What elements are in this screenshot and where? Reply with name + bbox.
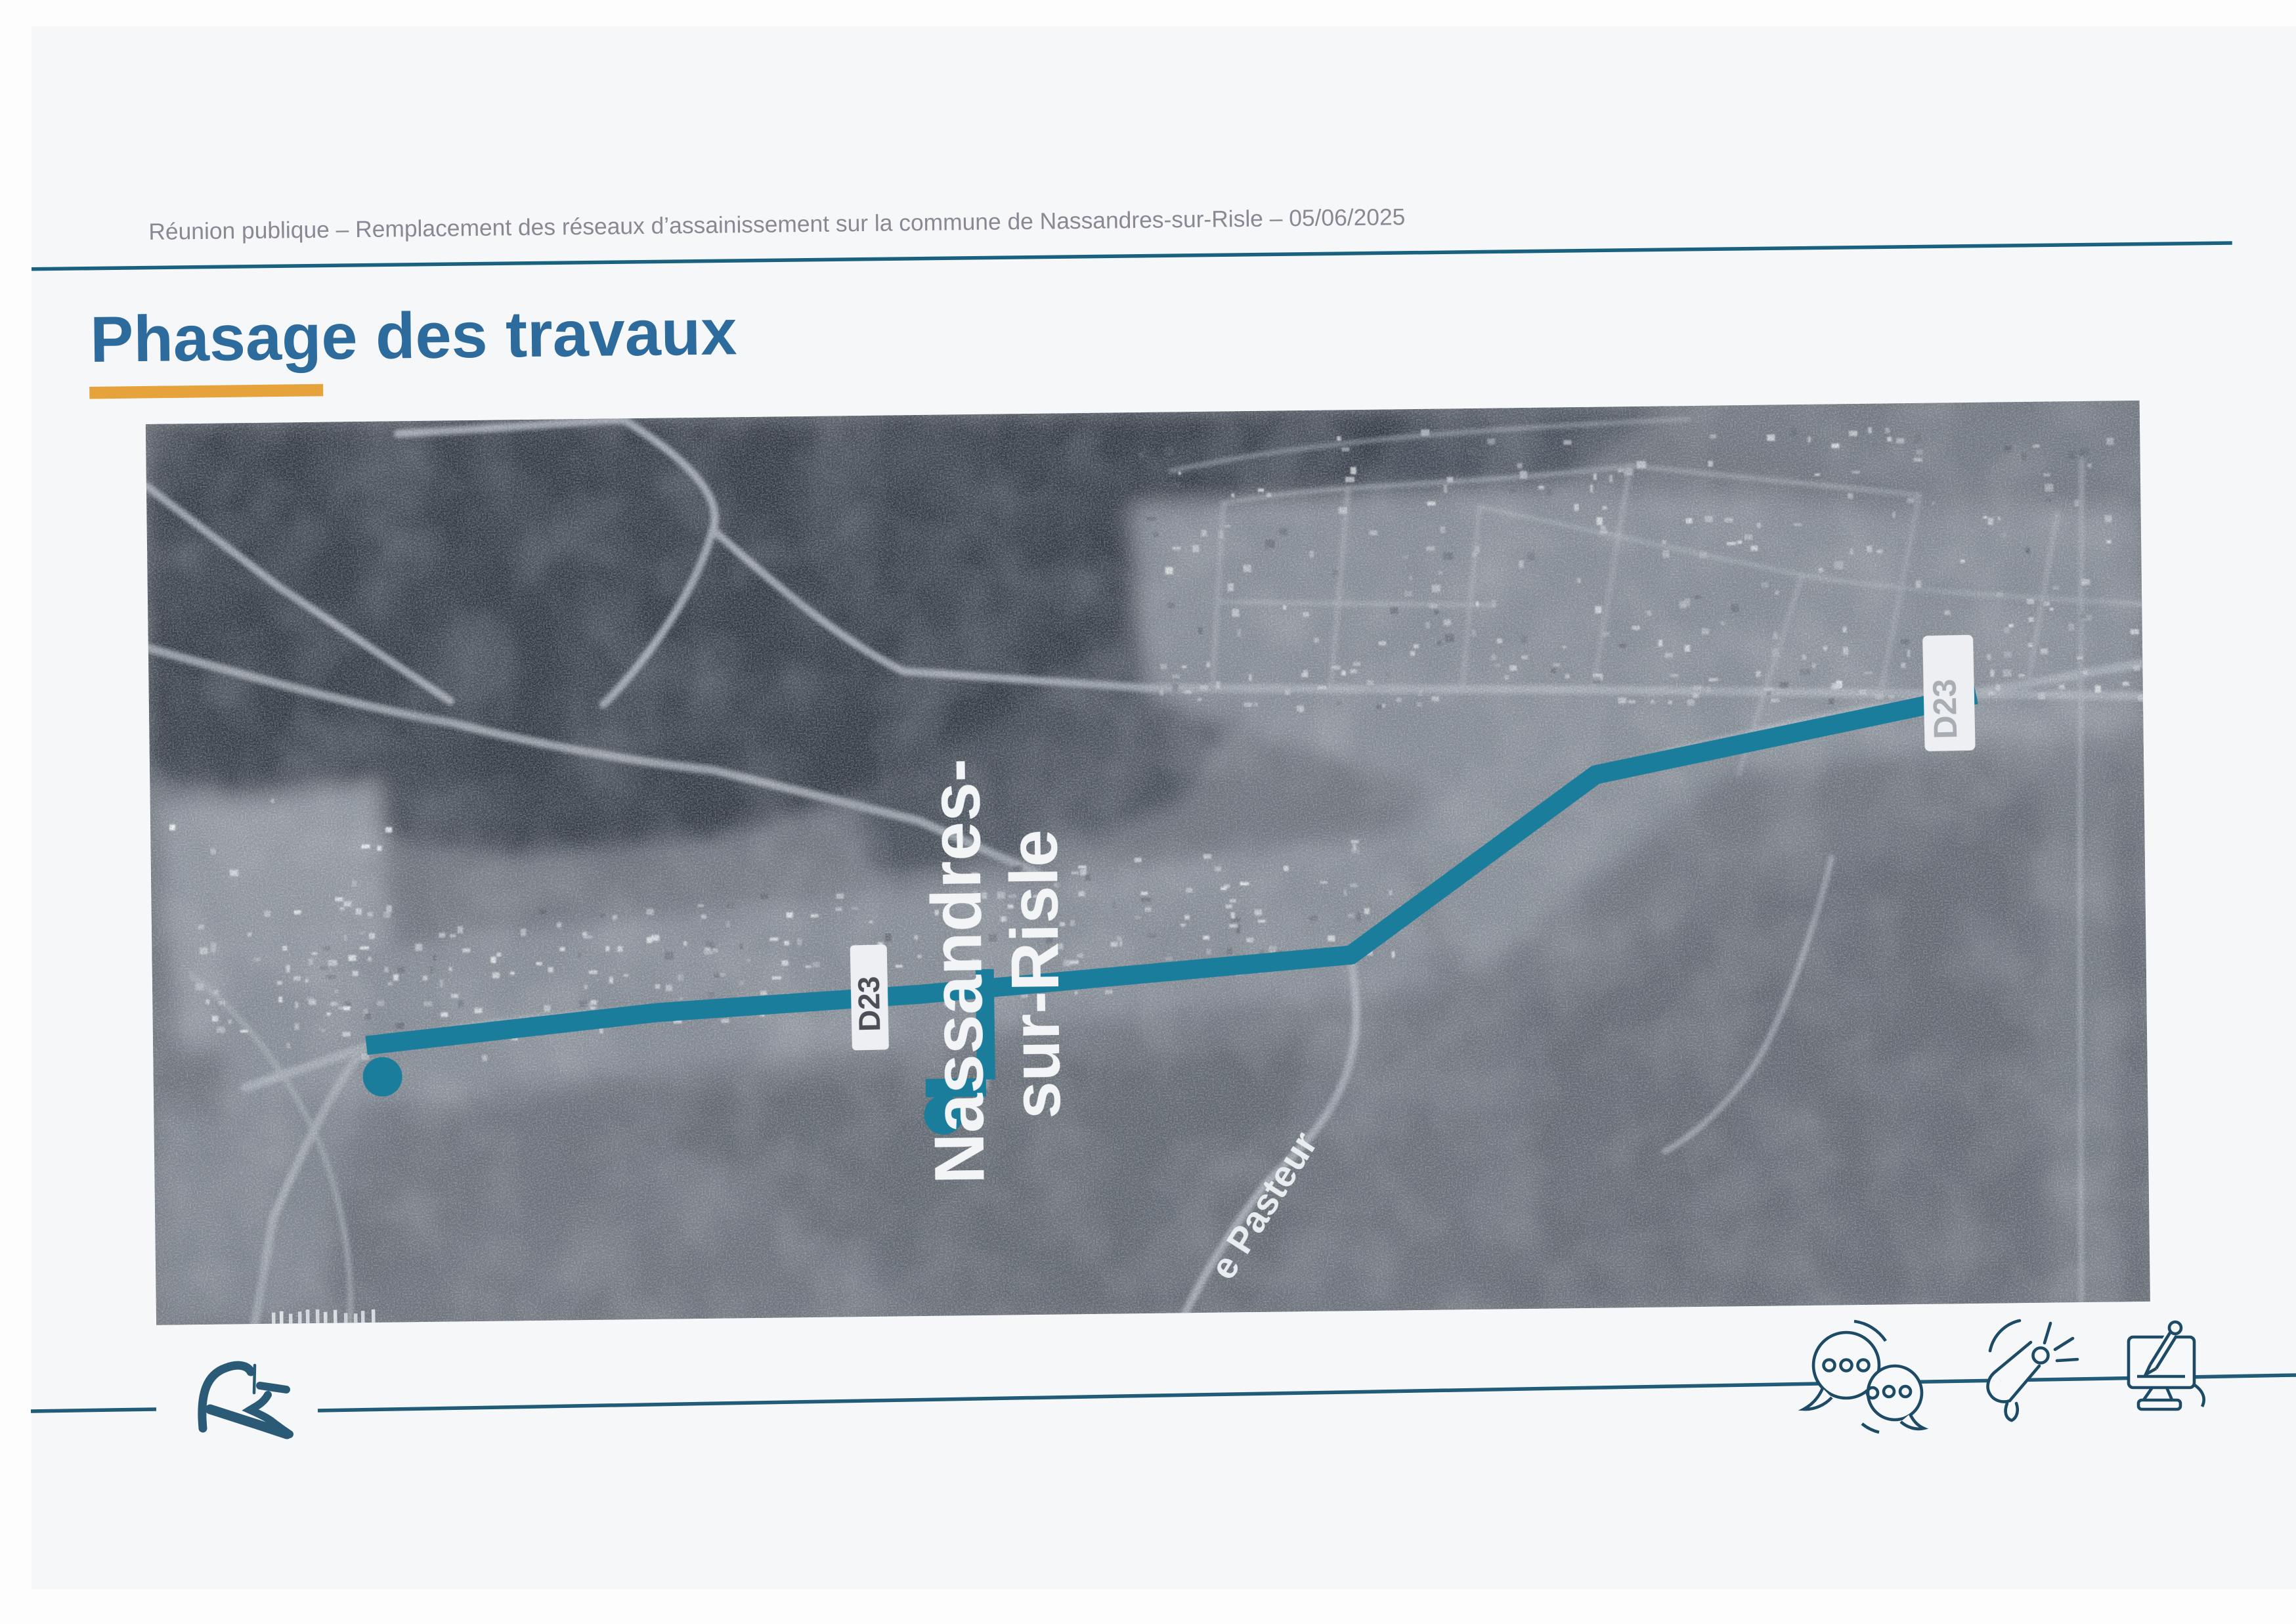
svg-text:Nassandres-: Nassandres-	[915, 758, 999, 1185]
svg-text:Phasage des travaux: Phasage des travaux	[90, 295, 737, 376]
svg-text:D23: D23	[1926, 678, 1964, 739]
svg-text:D23: D23	[852, 976, 887, 1032]
svg-text:sur-Risle: sur-Risle	[995, 829, 1074, 1119]
